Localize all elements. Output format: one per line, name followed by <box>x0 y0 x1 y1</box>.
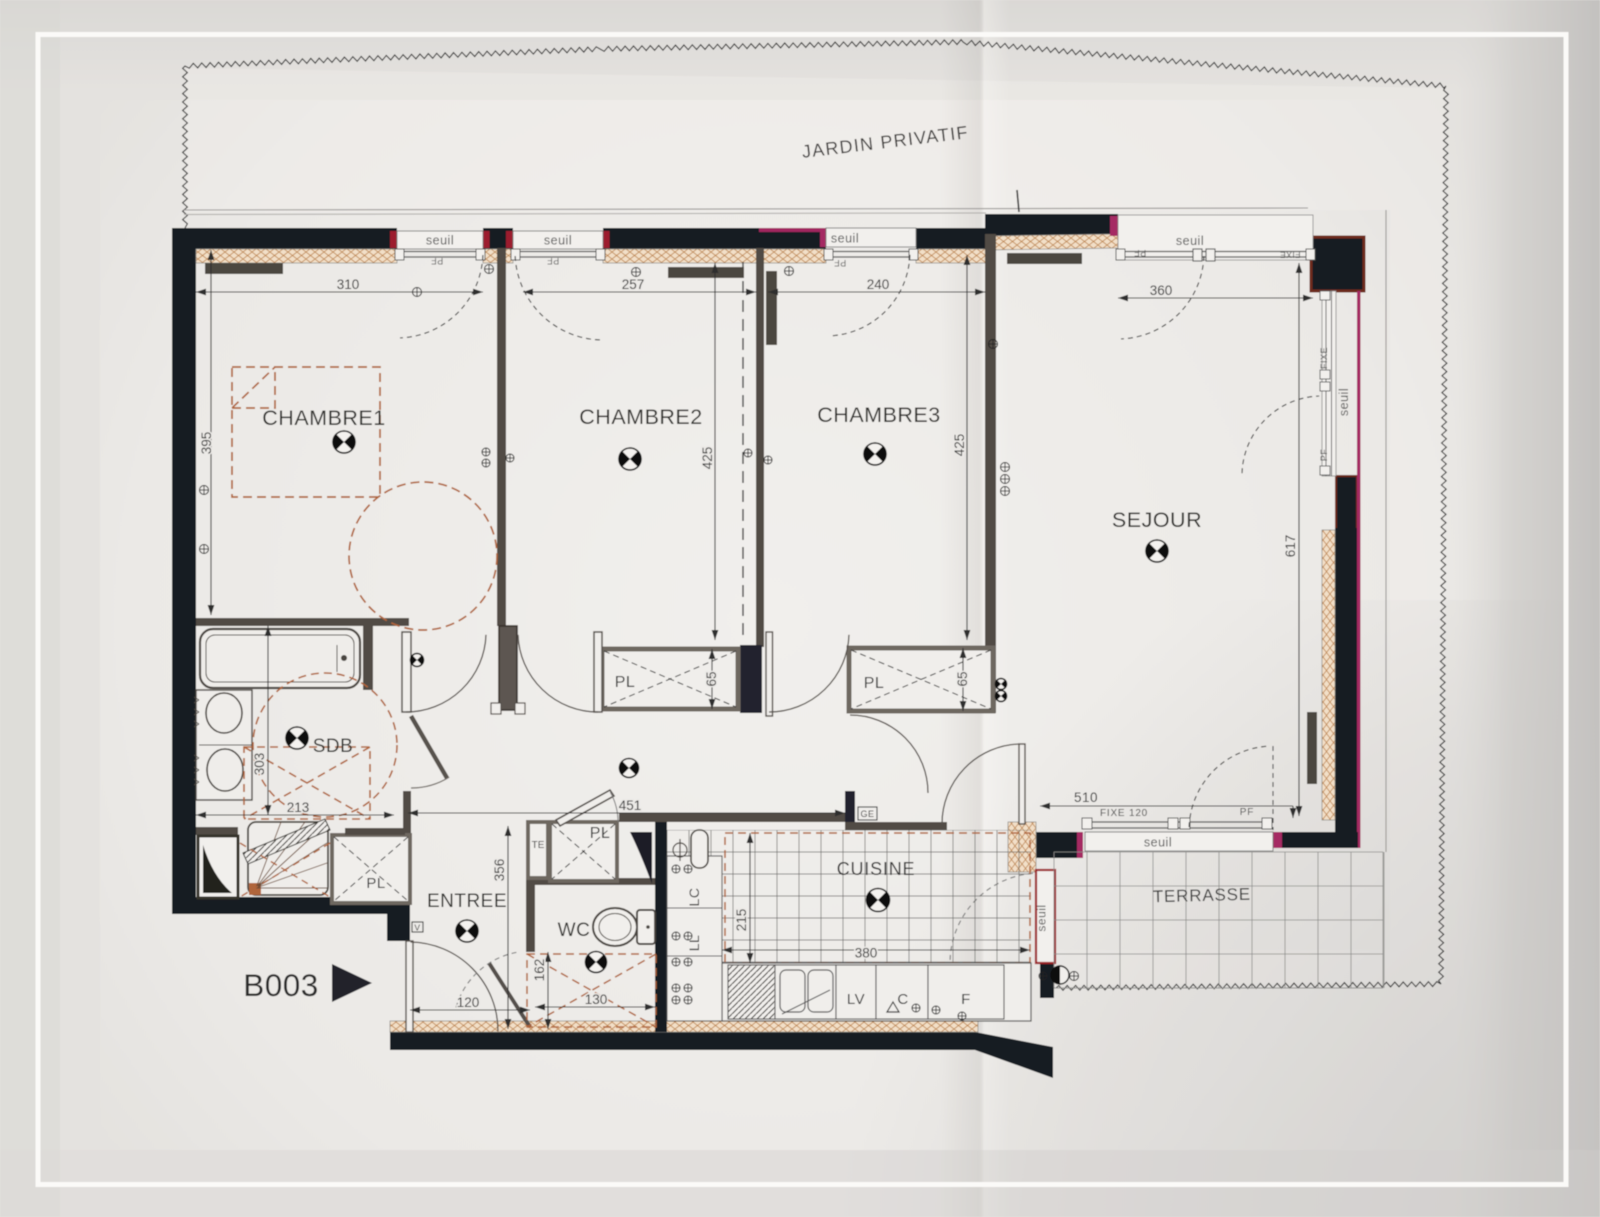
svg-text:F: F <box>961 991 971 1008</box>
svg-text:425: 425 <box>952 434 967 457</box>
svg-text:LC: LC <box>686 888 702 907</box>
svg-text:240: 240 <box>867 277 890 292</box>
svg-text:PF: PF <box>834 258 847 268</box>
svg-text:CUISINE: CUISINE <box>837 859 916 879</box>
svg-text:SDB: SDB <box>313 736 354 757</box>
svg-text:CHAMBRE3: CHAMBRE3 <box>817 403 940 427</box>
svg-text:PF: PF <box>1319 449 1329 462</box>
svg-text:CHAMBRE1: CHAMBRE1 <box>262 406 385 430</box>
svg-text:seuil: seuil <box>1337 388 1351 416</box>
svg-text:380: 380 <box>855 946 878 961</box>
svg-text:PF: PF <box>1134 248 1147 258</box>
svg-text:PL: PL <box>590 825 611 842</box>
svg-text:seuil: seuil <box>1035 904 1049 931</box>
svg-text:215: 215 <box>734 909 749 932</box>
svg-text:TERRASSE: TERRASSE <box>1153 885 1252 907</box>
svg-text:C: C <box>897 991 908 1008</box>
svg-text:seuil: seuil <box>1144 836 1172 850</box>
svg-text:LV: LV <box>847 991 865 1008</box>
svg-text:seuil: seuil <box>426 234 454 248</box>
svg-text:213: 213 <box>287 800 310 815</box>
svg-text:303: 303 <box>252 753 267 776</box>
svg-text:162: 162 <box>532 959 547 982</box>
svg-text:310: 310 <box>337 277 360 292</box>
svg-text:SEJOUR: SEJOUR <box>1112 508 1202 532</box>
svg-text:617: 617 <box>1283 535 1298 558</box>
svg-text:PL: PL <box>864 675 885 692</box>
svg-text:425: 425 <box>700 447 715 470</box>
svg-text:CHAMBRE2: CHAMBRE2 <box>579 405 702 429</box>
svg-text:130: 130 <box>585 992 608 1007</box>
svg-text:360: 360 <box>1150 283 1173 298</box>
svg-text:510: 510 <box>1074 790 1098 805</box>
svg-text:120: 120 <box>457 995 480 1010</box>
svg-text:PL: PL <box>615 674 636 691</box>
svg-text:356: 356 <box>492 859 507 882</box>
svg-text:WC: WC <box>558 920 591 941</box>
svg-text:TE: TE <box>532 840 545 851</box>
svg-text:PF: PF <box>1240 807 1254 818</box>
svg-text:seuil: seuil <box>831 232 859 246</box>
svg-text:PF: PF <box>547 256 560 266</box>
svg-text:seuil: seuil <box>544 234 572 248</box>
svg-text:451: 451 <box>619 798 642 813</box>
svg-text:V: V <box>414 923 420 933</box>
svg-text:257: 257 <box>622 277 645 292</box>
svg-text:PF: PF <box>431 256 444 266</box>
svg-text:65: 65 <box>704 671 719 686</box>
svg-text:FIXE 120: FIXE 120 <box>1100 808 1148 819</box>
svg-text:B003: B003 <box>243 967 319 1003</box>
svg-text:FIXE: FIXE <box>1319 347 1329 369</box>
svg-text:65: 65 <box>955 671 970 686</box>
svg-text:seuil: seuil <box>1176 234 1204 248</box>
svg-text:PL: PL <box>366 875 385 892</box>
svg-text:FIXE: FIXE <box>1280 250 1301 260</box>
svg-text:GE: GE <box>860 809 874 819</box>
svg-text:395: 395 <box>199 432 214 455</box>
svg-text:ENTREE: ENTREE <box>427 891 507 912</box>
